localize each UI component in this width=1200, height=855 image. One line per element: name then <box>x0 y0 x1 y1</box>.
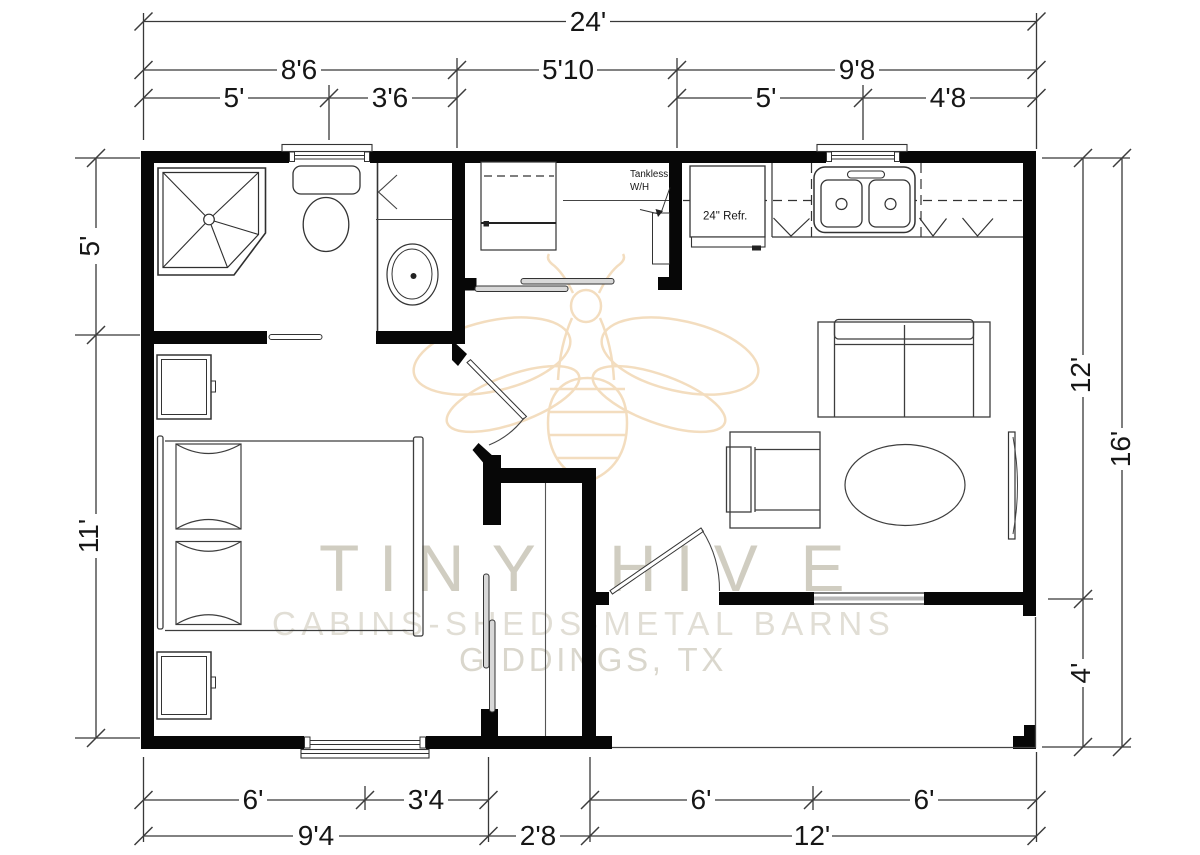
svg-text:9'4: 9'4 <box>298 820 335 851</box>
svg-text:5': 5' <box>756 82 777 113</box>
svg-text:8'6: 8'6 <box>281 54 318 85</box>
svg-text:5': 5' <box>224 82 245 113</box>
svg-text:9'8: 9'8 <box>839 54 876 85</box>
svg-text:6': 6' <box>691 784 712 815</box>
svg-text:3'6: 3'6 <box>372 82 409 113</box>
svg-text:6': 6' <box>914 784 935 815</box>
svg-text:11': 11' <box>73 519 104 553</box>
svg-text:TINY: TINY <box>319 531 536 605</box>
svg-text:5'10: 5'10 <box>542 54 594 85</box>
svg-text:24" Refr.: 24" Refr. <box>703 211 747 223</box>
svg-text:W/H: W/H <box>630 182 649 193</box>
svg-text:Tankless: Tankless <box>630 169 668 180</box>
svg-text:24': 24' <box>570 6 607 37</box>
svg-text:3'4: 3'4 <box>408 784 445 815</box>
svg-text:5': 5' <box>74 236 105 257</box>
svg-text:16': 16' <box>1105 431 1136 468</box>
svg-text:4'8: 4'8 <box>930 82 967 113</box>
svg-text:12': 12' <box>1065 357 1096 394</box>
svg-text:12': 12' <box>794 820 831 851</box>
svg-text:2'8: 2'8 <box>520 820 557 851</box>
svg-text:6': 6' <box>243 784 264 815</box>
svg-text:4': 4' <box>1065 663 1096 684</box>
